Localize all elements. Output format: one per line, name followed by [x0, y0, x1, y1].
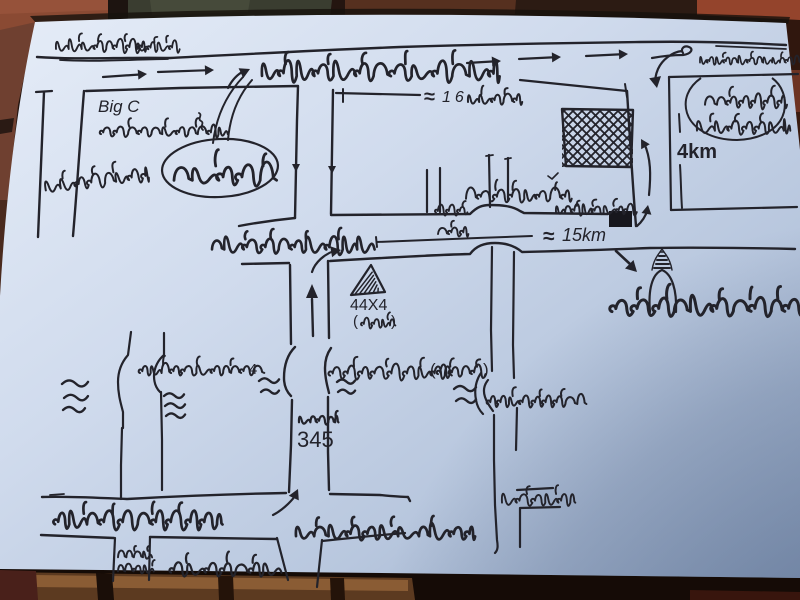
svg-text:4km: 4km — [677, 141, 717, 163]
svg-text:≈: ≈ — [424, 86, 435, 108]
svg-text:(: ( — [353, 313, 358, 330]
svg-text:44X4: 44X4 — [350, 297, 387, 314]
svg-text:(: ( — [430, 360, 436, 379]
svg-text:): ) — [483, 360, 489, 379]
svg-text:345: 345 — [297, 427, 334, 452]
svg-text:16: 16 — [442, 89, 468, 106]
svg-text:): ) — [391, 313, 396, 330]
svg-text:15km: 15km — [562, 225, 606, 245]
svg-text:4: 4 — [249, 361, 257, 378]
svg-text:Big C: Big C — [98, 97, 140, 116]
svg-text:≈: ≈ — [543, 225, 555, 248]
